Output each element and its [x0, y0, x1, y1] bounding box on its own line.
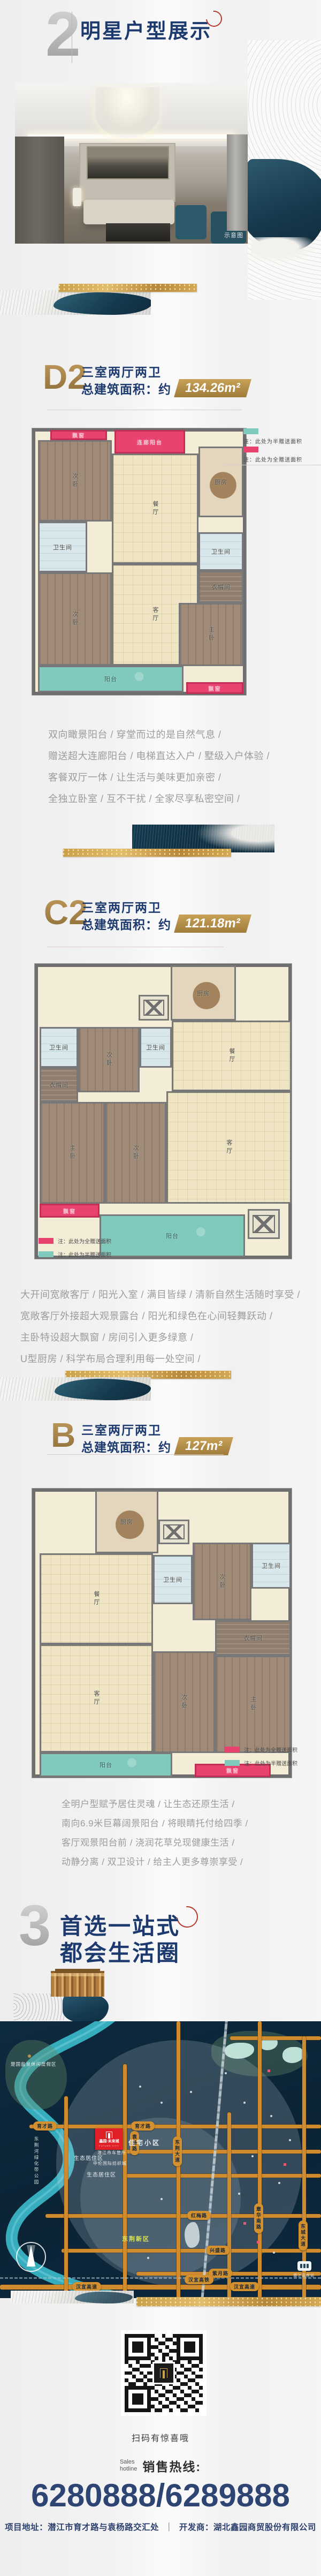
legend-label-half: 注：此处为半赠送面积	[243, 437, 302, 445]
road	[123, 2174, 321, 2178]
road-label: 汉宜高速	[230, 2282, 259, 2291]
section-number: 2	[45, 3, 81, 66]
qr-code	[121, 2330, 207, 2416]
unit-description-c2: 大开间宽敞客厅 / 阳光入室 / 满目皆绿 / 清新自然生活随时享受 /宽敞客厅…	[20, 1284, 300, 1370]
unit-area-d2: 总建筑面积：约 134.26m²	[81, 379, 249, 397]
road	[123, 2064, 127, 2298]
unit-area-c2: 总建筑面积：约 121.18m²	[81, 915, 249, 933]
project-name-en: FUTURE CITY	[99, 2144, 119, 2147]
road-label: 育才路	[131, 2121, 155, 2131]
hotline-label-en: Sales hotline	[120, 2459, 137, 2472]
poi-marker-pink	[284, 2163, 286, 2166]
road	[29, 2125, 321, 2128]
railway-dashed-line	[0, 2277, 321, 2279]
poi-dot	[28, 2054, 31, 2058]
poi-dot	[278, 2182, 280, 2184]
legend-label-full: 注：此处为全赠送面积	[58, 1237, 111, 1245]
building-illustration	[51, 1973, 147, 2024]
road	[302, 2036, 306, 2298]
poster-page: 2 明星户型展示 示意图 D2 三室两厅两卫 总建筑面积：约 134.26m² …	[0, 0, 321, 2576]
photo-armchair	[175, 205, 207, 239]
road	[45, 2214, 321, 2218]
poi-marker-pink	[243, 2222, 246, 2225]
photo-curtain	[227, 134, 248, 231]
road-label: 红梅路	[187, 2211, 211, 2220]
qr-caption: 扫码有惊喜哦	[0, 2431, 321, 2444]
qr-center-logo-icon	[152, 2362, 175, 2384]
road	[62, 2249, 321, 2253]
rule-line	[47, 410, 242, 410]
elevator-shaft	[139, 995, 169, 1021]
poi-dot	[139, 2086, 141, 2088]
hotline-label-zh: 销售热线:	[142, 2457, 201, 2475]
photo-sofa	[83, 200, 174, 224]
photo-artwork	[88, 147, 168, 178]
hotline-row: Sales hotline 销售热线:	[0, 2457, 321, 2475]
poi-dot	[270, 2115, 272, 2117]
poi-dot	[251, 2155, 254, 2157]
area-badge: 121.18m²	[174, 915, 251, 933]
road	[258, 2021, 262, 2298]
map-poi-label: 潜江市车管所	[97, 2150, 126, 2156]
unit-area-b: 总建筑面积：约 127m²	[81, 1437, 231, 1455]
photo-coffee-table	[106, 223, 170, 241]
decor-slab	[0, 290, 151, 315]
area-prefix: 总建筑面积：约	[81, 379, 171, 397]
poi-dot	[225, 2072, 227, 2074]
floorplan-b: 厨房 餐厅 卫生间 次卧 卫生间 客厅 次卧 衣帽间 主卧 阳台 飘窗	[32, 1489, 292, 1778]
map-area-label: 生态居住区	[87, 2170, 116, 2178]
poi-marker-pink	[267, 2069, 270, 2072]
decor-slab	[11, 2291, 134, 2303]
decor-slab	[0, 1377, 151, 1401]
map-area-label: 住宅小区	[128, 2138, 160, 2147]
art-sea-blob	[248, 159, 321, 250]
unit-code-d2: D2	[43, 360, 87, 394]
unit-layout-c2: 三室两厅两卫	[81, 897, 162, 916]
divider-vertical	[72, 12, 72, 63]
section-title: 明星户型展示	[80, 19, 212, 44]
footer-separator: ｜	[165, 2523, 173, 2532]
legend-label-half: 注：此处为半赠送面积	[58, 1250, 111, 1258]
project-marker: 鑫园·未来城 FUTURE CITY	[95, 2128, 123, 2150]
elevator-shaft	[248, 1209, 280, 1239]
poi-dot	[238, 2193, 240, 2195]
unit-layout-b: 三室两厅两卫	[81, 1420, 162, 1438]
art-foam	[251, 237, 315, 263]
living-room-photo: 示意图	[15, 83, 248, 244]
train-station-icon	[297, 2261, 311, 2271]
sales-phone-number: 6280888/6289888	[0, 2477, 321, 2514]
rule-line	[47, 947, 224, 947]
road	[64, 2096, 68, 2298]
poi-dot	[147, 2257, 149, 2259]
unit-description-d2: 双向瞰景阳台 / 穿堂而过的是自然气息 /赠送超大连廊阳台 / 电梯直达入户 /…	[48, 724, 270, 810]
legend-swatch-half	[243, 428, 258, 434]
legend-swatch-full	[39, 1238, 53, 1244]
legend-label-full: 注：此处为全赠送面积	[244, 1746, 297, 1754]
area-badge: 134.26m²	[174, 379, 251, 397]
gold-bar	[136, 2297, 321, 2306]
gold-bar	[63, 849, 231, 857]
road	[123, 2150, 321, 2154]
road-label: 育才路	[33, 2121, 57, 2131]
project-name: 鑫园·未来城	[99, 2139, 119, 2144]
decor-art-panel	[248, 40, 321, 300]
photo-wardrobe	[15, 137, 64, 244]
floorplan-d2: 飘窗 连廊阳台 次卧 厨房 餐厅 卫生间 卫生间 衣帽间 次卧 客厅 主卧 阳台…	[32, 428, 246, 695]
rule-line	[47, 1454, 224, 1455]
footer-address-line: 项目地址：潜江市育才路与袁杨路交汇处 ｜ 开发商：湖北鑫园商贸股份有限公司	[0, 2521, 321, 2533]
road	[230, 2036, 321, 2040]
project-logo-icon	[106, 2132, 112, 2138]
map-area-label: 东荆河绿化带公园	[33, 2136, 40, 2185]
section-title-line2: 都会生活圈	[60, 1939, 180, 1967]
project-address: 项目地址：潜江市育才路与袁杨路交汇处	[5, 2523, 159, 2532]
map-area-label: 楚国盐泉休闲度假区	[11, 2061, 57, 2067]
developer-name: 开发商：湖北鑫园商贸股份有限公司	[179, 2523, 316, 2532]
legend-label-half: 注：此处为半赠送面积	[244, 1759, 297, 1767]
road-label: 东荆大道	[173, 2136, 182, 2166]
poi-dot	[160, 2102, 163, 2104]
road-label: 兴盛路	[206, 2246, 230, 2255]
legend-swatch-full	[243, 447, 258, 452]
map-area-label: 东荆新区	[122, 2234, 150, 2243]
poi-dot	[160, 2198, 163, 2200]
poi-dot	[243, 2102, 246, 2104]
poi-dot	[273, 2252, 275, 2254]
photo-watermark: 示意图	[224, 231, 243, 239]
poi-marker-pink	[257, 2241, 259, 2243]
legend-divider	[225, 465, 321, 465]
chandelier	[95, 87, 159, 138]
photo-lamp	[73, 188, 81, 206]
compass-icon	[16, 2242, 46, 2272]
area-prefix: 总建筑面积：约	[81, 1437, 171, 1455]
unit-code-b: B	[51, 1418, 75, 1452]
poi-dot	[190, 2091, 192, 2093]
location-map: 育才路 育才路 红梅路 兴盛路 紫月路 汉宜高铁 汉宜高速 汉宜高速 袁杨路 东…	[0, 2021, 321, 2298]
elevator-shaft	[158, 1520, 189, 1544]
legend-swatch-half	[39, 1251, 53, 1257]
map-poi-label: 潜江高铁站	[293, 2273, 315, 2278]
legend-row-full: 注：此处为全赠送面积	[225, 1746, 297, 1754]
floorplan-c2: 厨房 卫生间 次卧 卫生间 餐厅 衣帽间 主卧 次卧 客厅 飘窗 阳台	[35, 964, 292, 1259]
road-label: 汉宜高铁	[185, 2275, 213, 2284]
road-label: 汉宜高速	[72, 2282, 101, 2291]
legend-swatch-full	[225, 1747, 240, 1752]
legend-row-half: 注：此处为半赠送面积	[39, 1250, 111, 1258]
area-badge: 127m²	[174, 1437, 233, 1455]
lake	[185, 2222, 200, 2248]
road-label: 东城大道	[299, 2220, 308, 2250]
unit-layout-d2: 三室两厅两卫	[81, 362, 162, 380]
area-prefix: 总建筑面积：约	[81, 915, 171, 933]
gold-bar	[59, 284, 197, 292]
section-title-line1: 首选一站式	[60, 1913, 180, 1940]
road-label: 章华南路	[254, 2203, 263, 2233]
unit-description-b: 全明户型赋予居住灵魂 / 让生态还原生活 /南向6.9米巨幕阔景阳台 / 将眼睛…	[62, 1795, 248, 1872]
section-number: 3	[19, 1897, 51, 1954]
highway-road	[0, 2285, 321, 2290]
legend-row-half: 注：此处为半赠送面积	[225, 1759, 297, 1767]
legend-row-full: 注：此处为全赠送面积	[39, 1237, 111, 1245]
poi-dot	[289, 2139, 291, 2141]
legend-swatch-half	[225, 1760, 240, 1766]
legend-label-full: 注：此处为全赠送面积	[243, 455, 302, 463]
map-poi-label: 中伦国际纺织城	[93, 2160, 127, 2166]
